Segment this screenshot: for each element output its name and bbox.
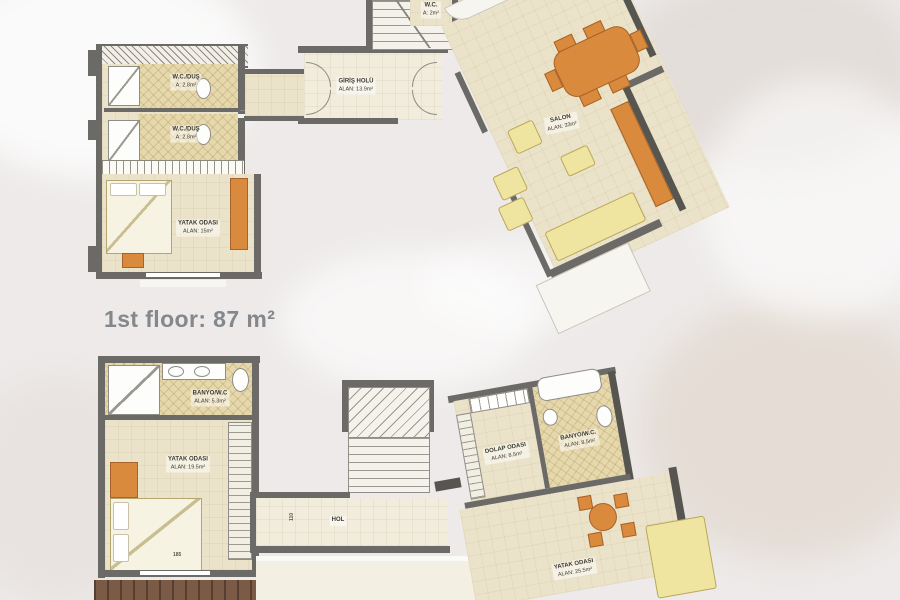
floor-title: 1st floor: 87 m² (104, 306, 275, 333)
wall (344, 380, 434, 387)
room-label-bedroom: YATAK ODASI ALAN: 15m² (176, 220, 220, 237)
shower (108, 365, 160, 415)
dimension-label: 110 (289, 513, 295, 521)
room-label-bathroom-left: BANYO/W.C ALAN: 5.3m² (191, 390, 230, 407)
marble-texture-blob (700, 80, 900, 320)
wall (98, 356, 105, 578)
wall (254, 174, 261, 278)
floor-hall (256, 498, 448, 546)
room-area: A: 2.8m² (172, 134, 199, 141)
room-name: YATAK ODASI (178, 221, 218, 229)
wall (244, 69, 306, 74)
room-name: HOL (332, 517, 345, 525)
wall (250, 492, 256, 552)
chair (613, 493, 629, 509)
wardrobe (230, 178, 248, 250)
wall (104, 108, 238, 112)
window-band (102, 160, 244, 175)
wall (88, 246, 96, 272)
window (146, 273, 220, 277)
room-area: ALAN: 13.9m² (338, 86, 373, 93)
window (140, 571, 210, 575)
shower (108, 120, 140, 162)
room-name: YATAK ODASI (168, 457, 208, 465)
room-area: A: 2m² (423, 10, 439, 17)
wood-deck (94, 580, 260, 600)
pillow (113, 534, 129, 562)
wall (88, 50, 96, 76)
sink (194, 366, 210, 377)
room-label-wc2: W.C./DUŞ A: 2.8m² (170, 126, 201, 143)
wall (434, 477, 461, 491)
staircase (348, 437, 430, 493)
bed (645, 515, 717, 598)
room-label-entrance-hall: GİRİŞ HOLÜ ALAN: 13.9m² (336, 78, 375, 95)
room-area: ALAN: 15m² (178, 228, 218, 235)
room-label-bedroom-left: YATAK ODASI ALAN: 19.5m² (166, 456, 210, 473)
pillow (110, 183, 137, 196)
salon-wing: SALON ALAN: 33m² (450, 0, 728, 281)
dresser (110, 462, 138, 498)
dimension-label: 185 (173, 552, 181, 558)
room-label-wc1: W.C./DUŞ A: 2.8m² (170, 74, 201, 91)
room-label-hall: HOL (330, 516, 347, 526)
room-area: ALAN: 19.5m² (168, 464, 208, 471)
chair (588, 532, 604, 548)
wall (104, 356, 260, 363)
room-name: W.C./DUŞ (172, 127, 199, 135)
marble-texture-blob (280, 250, 540, 390)
staircase (348, 387, 430, 439)
wall (250, 492, 350, 498)
chair (577, 495, 593, 511)
toilet (232, 368, 249, 392)
nightstand (122, 253, 144, 268)
wall (298, 118, 398, 124)
room-name: W.C./DUŞ (172, 75, 199, 83)
room-area: A: 2.8m² (172, 82, 199, 89)
chair (620, 522, 636, 538)
lower-terrace (256, 556, 484, 600)
right-wing: DOLAP ODASI ALAN: 8.5m² BANYO/W.C. ALAN:… (450, 375, 682, 600)
room-name: GİRİŞ HOLÜ (338, 79, 373, 87)
wall (244, 116, 306, 121)
wall (366, 0, 372, 50)
closet (228, 422, 252, 560)
room-name: W.C. (423, 3, 439, 11)
room-name: BANYO/W.C (193, 391, 228, 399)
pillow (139, 183, 166, 196)
shower (108, 66, 140, 106)
floor-corridor (245, 74, 307, 116)
room-label-wc-top: W.C. A: 2m² (421, 2, 441, 19)
wall (238, 44, 245, 114)
room-area: ALAN: 5.3m² (193, 398, 228, 405)
sink (168, 366, 184, 377)
floorplan-image: W.C./DUŞ A: 2.8m² W.C./DUŞ A: 2.8m² YATA… (0, 0, 900, 600)
wall (88, 120, 96, 140)
pillow (113, 502, 129, 530)
window-sill (140, 280, 226, 287)
wall (250, 546, 450, 553)
